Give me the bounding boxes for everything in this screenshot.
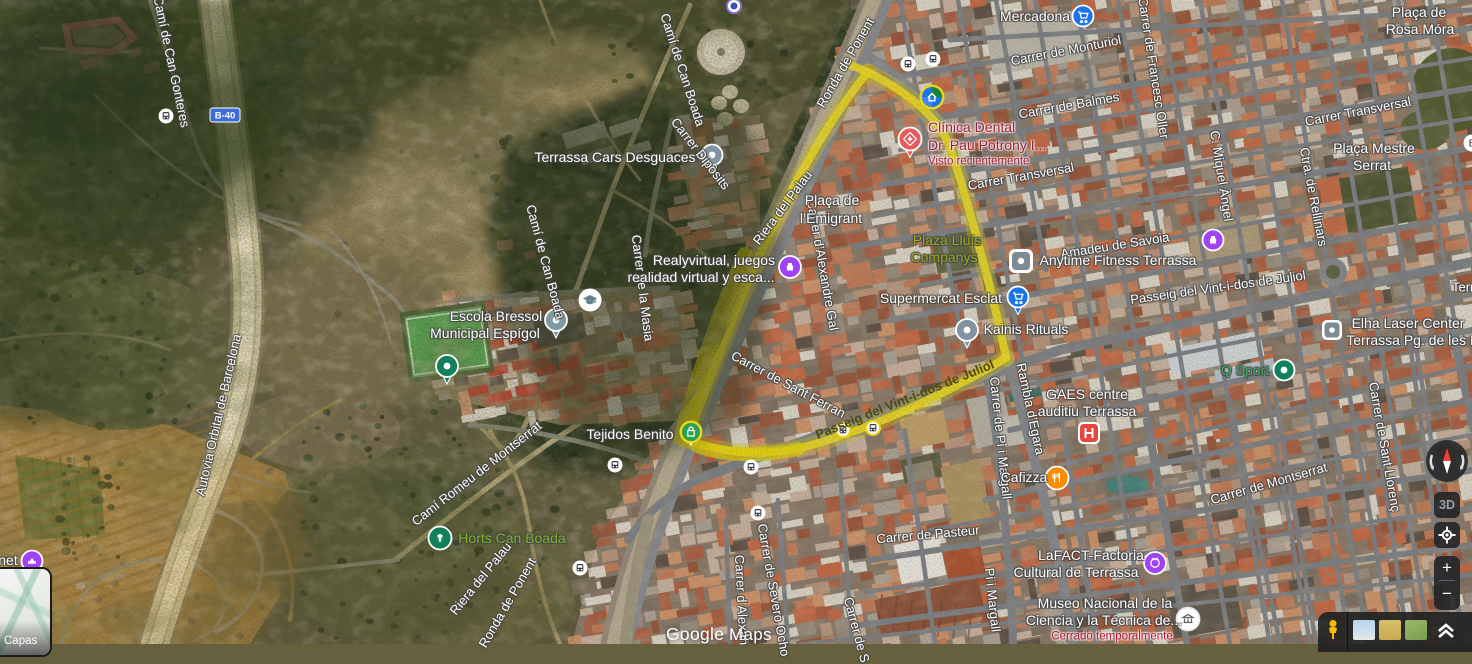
svg-text:B: B: [1469, 139, 1472, 150]
svg-text:B-40: B-40: [215, 111, 236, 122]
